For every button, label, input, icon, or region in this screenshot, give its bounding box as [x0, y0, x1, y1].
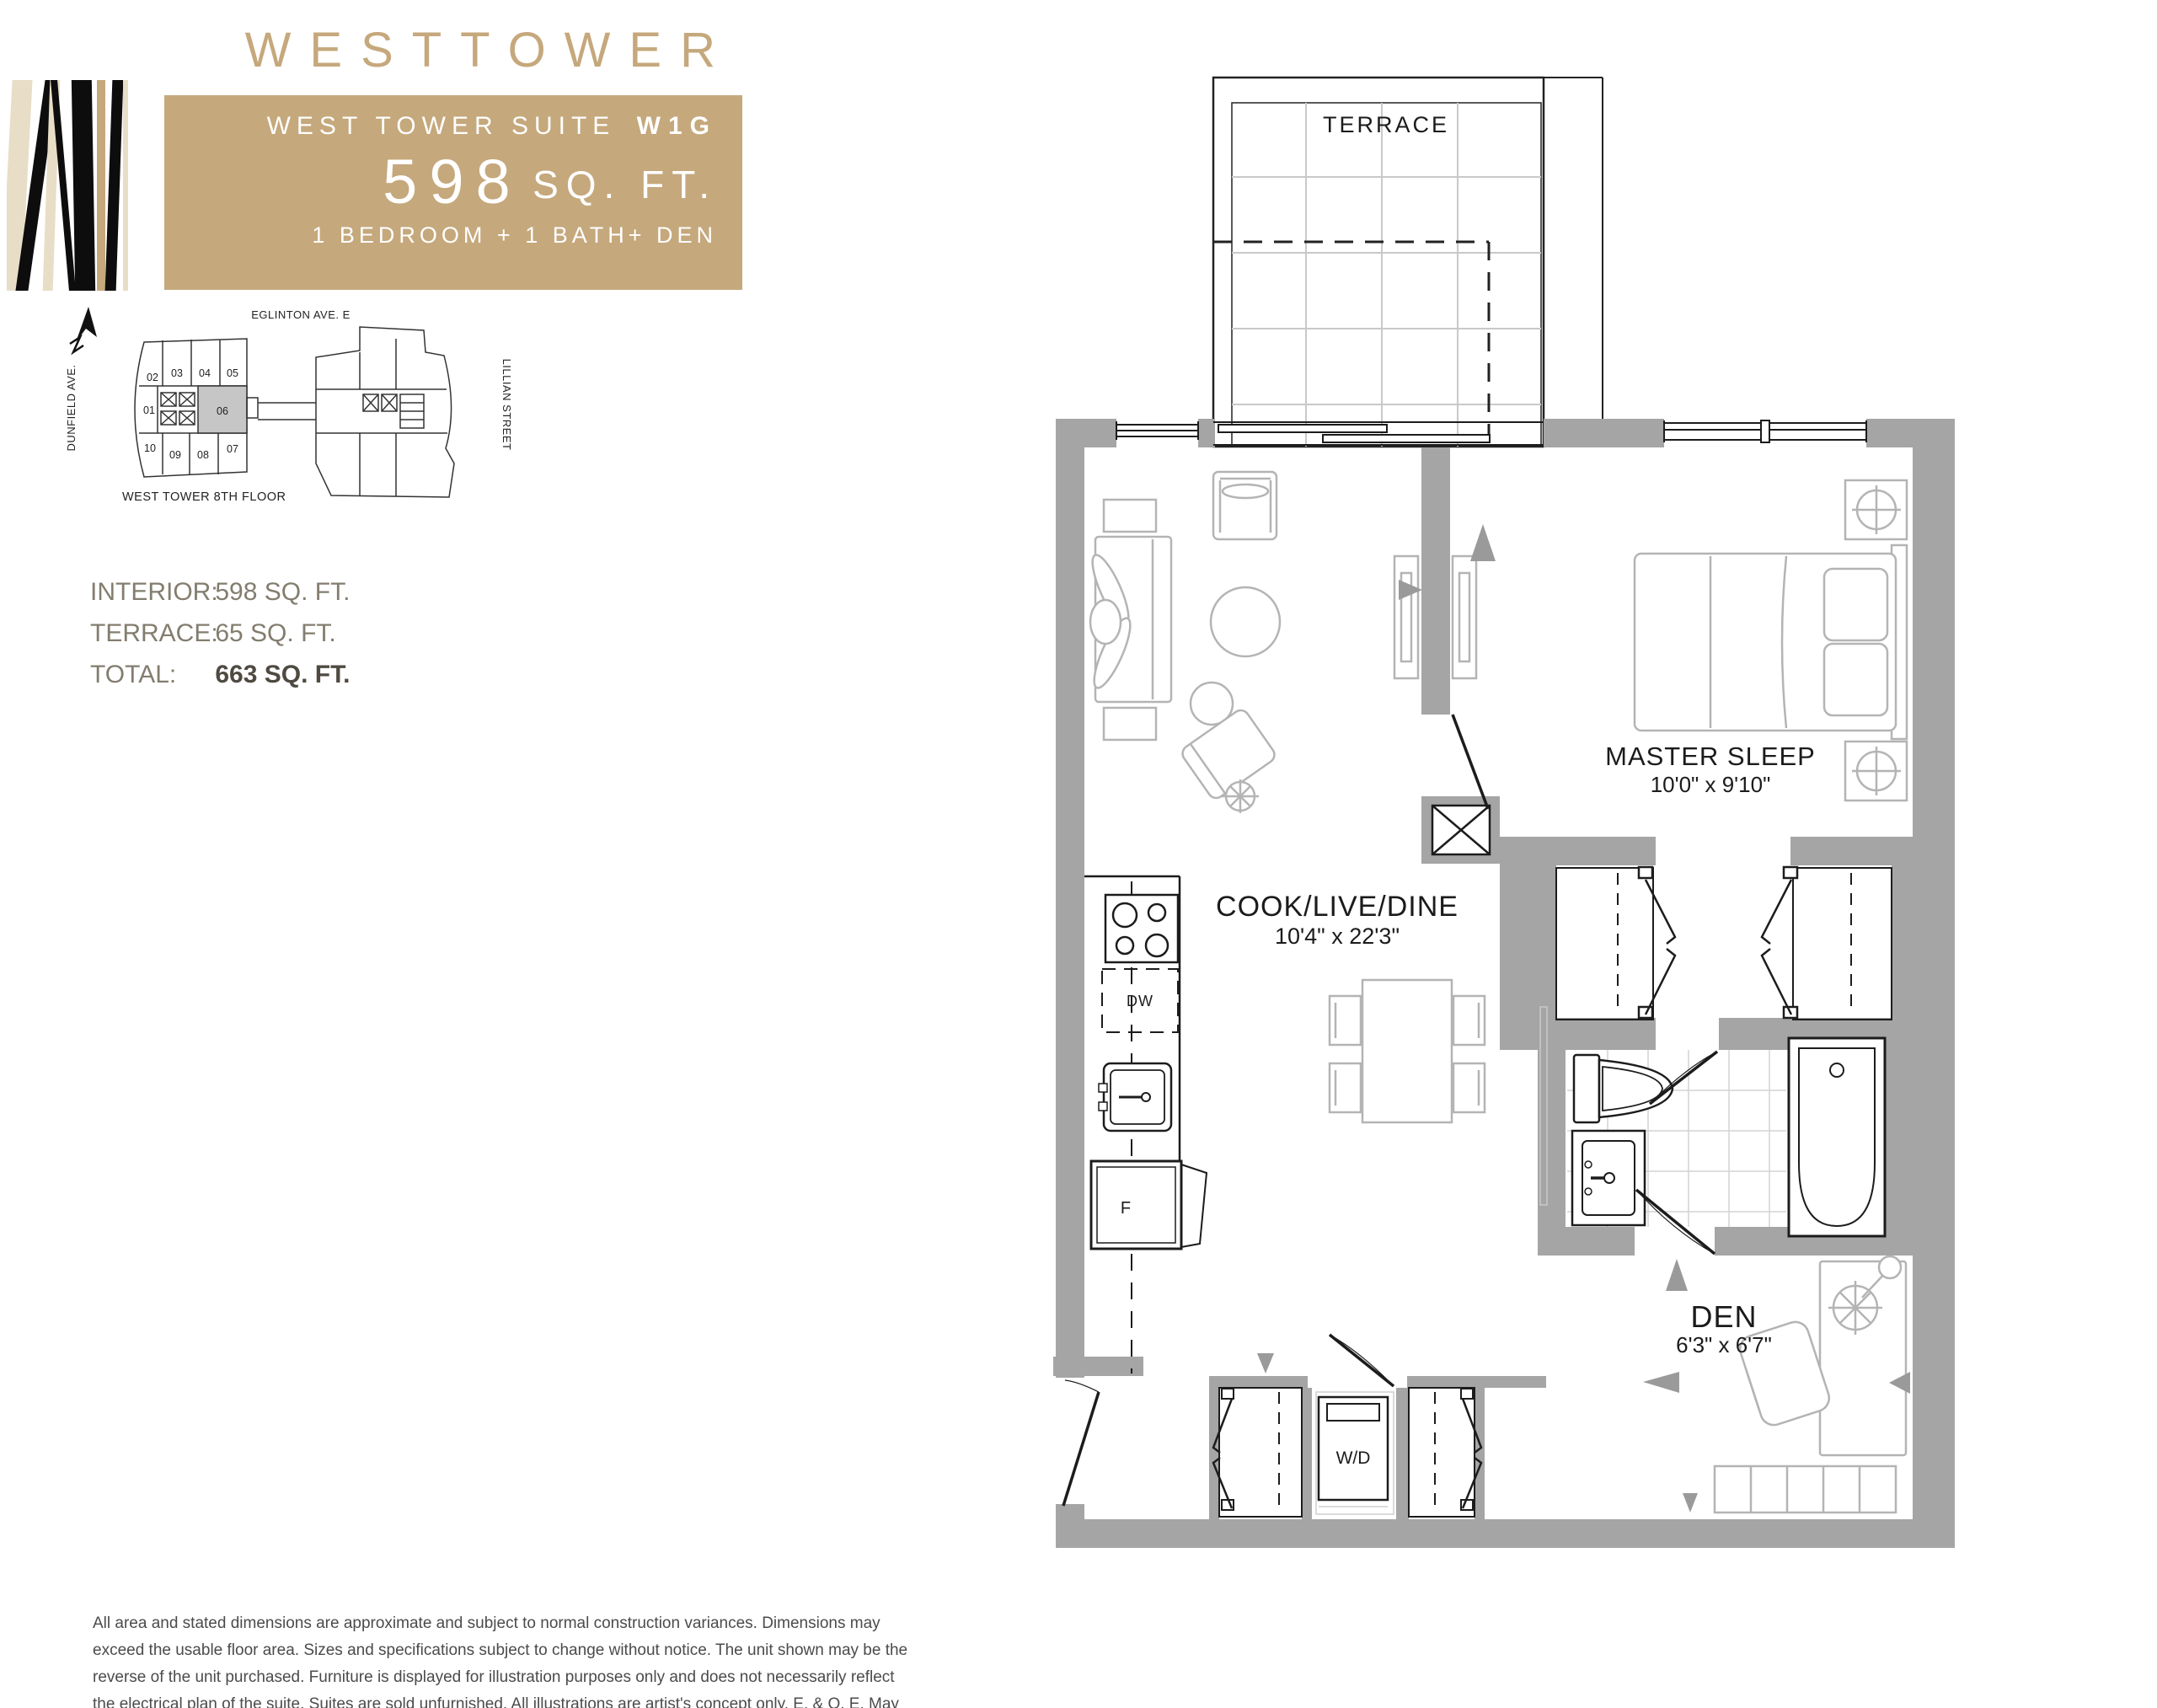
den-dims: 6'3" x 6'7"	[1676, 1332, 1772, 1357]
area-label: TOTAL:	[90, 661, 208, 689]
dining-set	[1330, 980, 1485, 1122]
keyplan-unit-label: 02	[147, 372, 158, 383]
keyplan-east-tower	[316, 327, 454, 497]
keyplan-unit-label: 04	[199, 367, 211, 379]
street-label-left: DUNFIELD AVE.	[65, 364, 78, 451]
suite-code: W1G	[637, 112, 717, 140]
keyplan-svg: EGLINTON AVE. E DUNFIELD AVE. LILLIAN ST…	[63, 305, 586, 528]
disclaimer-text: All area and stated dimensions are appro…	[93, 1610, 908, 1708]
logo-stripe	[97, 80, 105, 291]
keyplan-unit-label: 07	[227, 443, 238, 455]
partition-living-bedroom	[1421, 447, 1450, 715]
den	[1715, 1256, 1906, 1513]
hall-closet	[1409, 1388, 1481, 1517]
logo-stripe	[72, 80, 96, 291]
floorplan-sheet: WESTTOWER WEST TOWER SUITE W1G 598 SQ. F…	[0, 0, 2157, 1708]
area-row-total: TOTAL: 663 SQ. FT.	[90, 661, 350, 689]
arrow-down-icon	[1683, 1493, 1698, 1513]
logo-stripe	[123, 80, 128, 291]
arrow-left-icon	[1643, 1372, 1679, 1393]
living-window	[1116, 421, 1198, 440]
terrace-label: TERRACE	[1323, 112, 1449, 137]
master-bedroom-dims: 10'0" x 9'10"	[1651, 772, 1771, 797]
keyplan-unit-label: 05	[227, 367, 238, 379]
entry-closet	[1213, 1388, 1302, 1517]
street-label-top: EGLINTON AVE. E	[251, 308, 351, 321]
area-value: 65 SQ. FT.	[215, 619, 335, 648]
pillow	[1824, 644, 1887, 715]
bathtub	[1789, 1038, 1885, 1236]
kitchen-sink	[1099, 1063, 1171, 1131]
den-shelf	[1715, 1466, 1896, 1513]
area-label: TERRACE:	[90, 619, 208, 648]
vanity-sink	[1572, 1131, 1645, 1225]
keyplan-unit-label: 10	[144, 442, 156, 454]
sofa	[1086, 537, 1171, 702]
suite-line: WEST TOWER SUITE W1G	[164, 112, 717, 141]
bedroom-closets	[1556, 867, 1892, 1020]
keyplan-unit-label-highlighted: 06	[217, 405, 228, 417]
suite-area-unit: SQ. FT.	[533, 163, 717, 206]
brand-title: WESTTOWER	[164, 22, 734, 78]
kitchen: DW F	[1084, 876, 1207, 1373]
arrow-up-icon	[1666, 1259, 1688, 1291]
fridge: F	[1091, 1161, 1207, 1249]
dishwasher-label: DW	[1127, 993, 1153, 1009]
area-label: INTERIOR:	[90, 578, 208, 607]
side-table	[1104, 708, 1156, 740]
bedroom-window	[1664, 420, 1866, 442]
suite-header-box: WEST TOWER SUITE W1G 598 SQ. FT. 1 BEDRO…	[164, 95, 742, 290]
area-row-terrace: TERRACE: 65 SQ. FT.	[90, 619, 350, 648]
side-table	[1104, 500, 1156, 532]
fridge-label: F	[1121, 1199, 1131, 1218]
arrow-up-icon	[1470, 524, 1496, 561]
area-row-interior: INTERIOR: 598 SQ. FT.	[90, 578, 350, 607]
washer-dryer-label: W/D	[1336, 1448, 1371, 1468]
brand-logo	[7, 80, 128, 291]
dining-table	[1362, 980, 1452, 1122]
keyplan-floor-label: WEST TOWER 8TH FLOOR	[122, 490, 286, 504]
area-table: INTERIOR: 598 SQ. FT. TERRACE: 65 SQ. FT…	[90, 578, 350, 702]
den-label: DEN	[1690, 1299, 1757, 1334]
shaft	[1432, 806, 1490, 854]
lounge-chair	[1180, 683, 1278, 813]
bifold-door	[1639, 867, 1675, 1018]
keyplan-unit-label: 01	[143, 404, 155, 416]
pillow	[1824, 569, 1887, 640]
keyplan-unit-label: 08	[197, 449, 209, 461]
dishwasher: DW	[1102, 969, 1178, 1032]
suite-entry-door	[1063, 1380, 1099, 1506]
laundry-door-leaf	[1330, 1335, 1394, 1386]
bifold-door	[1762, 867, 1797, 1018]
area-value: 663 SQ. FT.	[215, 661, 350, 689]
floorplan-svg: DW F	[1045, 34, 1993, 1576]
suite-program: 1 BEDROOM + 1 BATH+ DEN	[164, 222, 717, 249]
windows	[1116, 420, 1866, 445]
arrow-down-icon	[1257, 1353, 1274, 1373]
round-rug	[1211, 587, 1280, 656]
north-arrow-icon	[70, 307, 97, 352]
keyplan-unit-label: 09	[169, 449, 181, 461]
suite-area-number: 598	[383, 147, 522, 217]
area-value: 598 SQ. FT.	[215, 578, 350, 607]
street-label-right: LILLIAN STREET	[500, 359, 513, 451]
cook-live-dine-dims: 10'4" x 22'3"	[1275, 924, 1400, 949]
toilet	[1574, 1055, 1673, 1122]
suite-area-line: 598 SQ. FT.	[164, 146, 717, 217]
armchair	[1213, 472, 1277, 539]
cook-live-dine-label: COOK/LIVE/DINE	[1216, 891, 1459, 923]
logo-stripe	[104, 80, 124, 291]
keyplan-unit-label: 03	[171, 367, 183, 379]
laundry-closet: W/D	[1316, 1335, 1394, 1514]
master-bedroom-label: MASTER SLEEP	[1605, 742, 1816, 771]
terrace-sliding-door	[1213, 422, 1544, 445]
stove	[1105, 895, 1178, 962]
bedroom-door-leaf	[1453, 715, 1488, 809]
suite-prefix: WEST TOWER SUITE	[267, 112, 616, 140]
